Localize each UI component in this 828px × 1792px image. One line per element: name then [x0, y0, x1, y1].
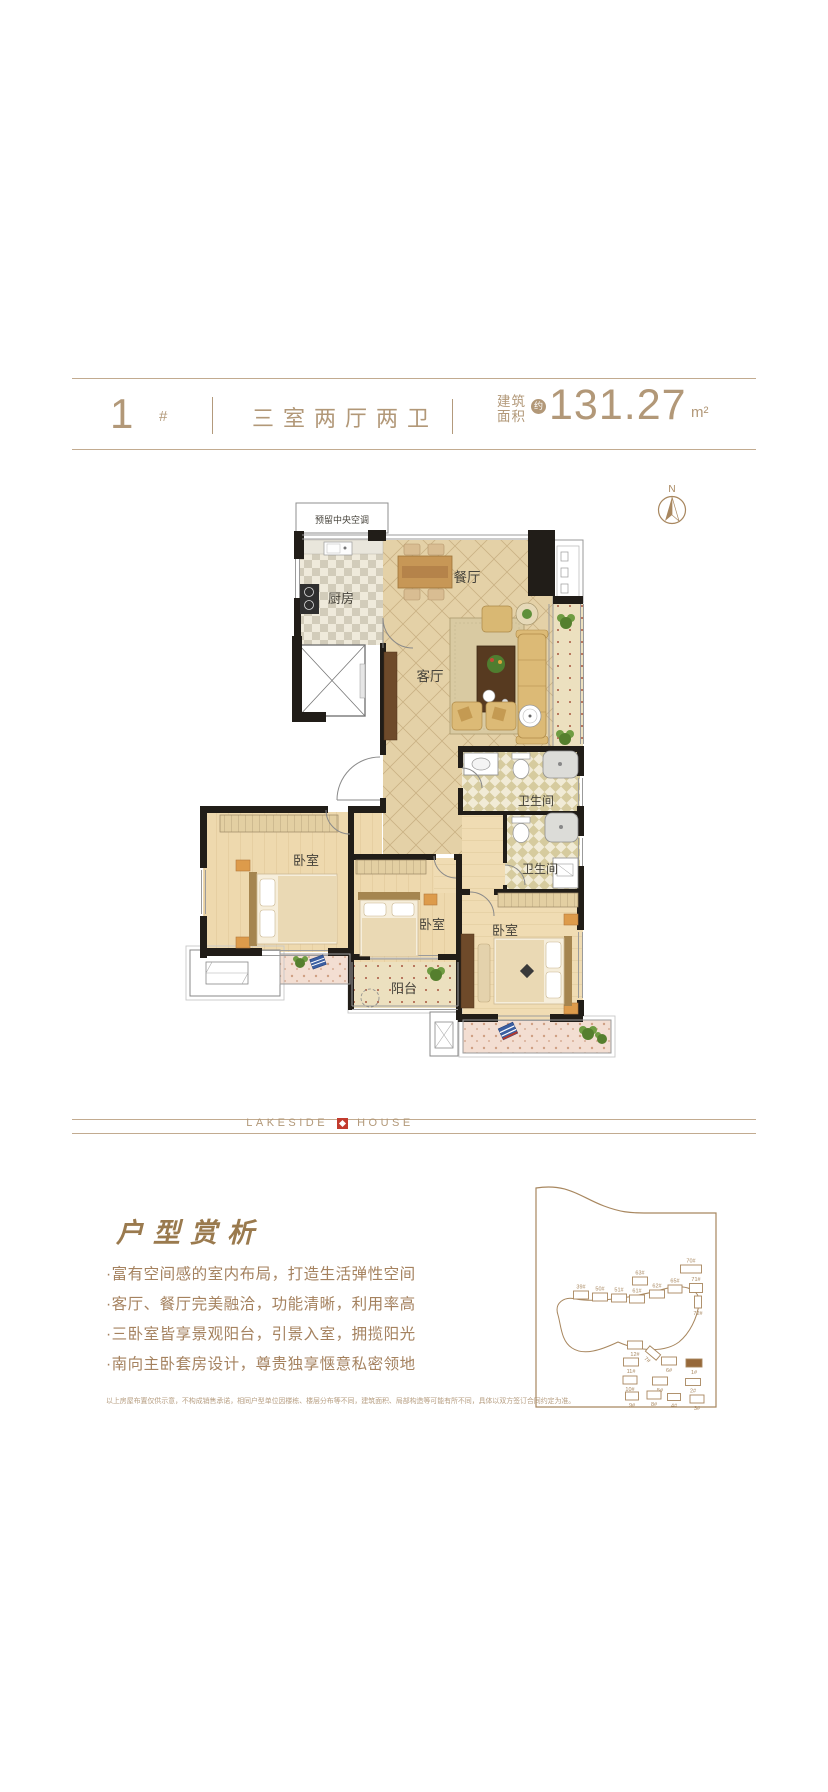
approx-badge: 约: [531, 399, 546, 414]
site-map-building: 2#: [686, 1379, 701, 1395]
site-map-building: 71#: [690, 1277, 703, 1293]
site-map-building: 10#: [623, 1376, 637, 1393]
site-map-building-label: 2#: [690, 1389, 697, 1395]
site-map-building: 62#: [650, 1284, 665, 1299]
site-map-building-label: 72#: [693, 1311, 703, 1317]
site-map-building: 6#: [662, 1357, 677, 1374]
bath1-fixtures: [464, 751, 578, 779]
site-map-svg: 39#50#51#61#62#63#65#70#71#72#12#7#6#1#1…: [528, 1185, 788, 1420]
floor-plan-svg: 预留中央空调 厨房 餐厅 客厅 卫生间 卫生间 卧室 卧室 卧室 阳台 N: [185, 440, 770, 1070]
bay-window: [553, 540, 583, 603]
area-label-top: 建筑: [497, 394, 526, 409]
header-top-rule: [72, 378, 756, 379]
analysis-bullets: ·富有空间感的室内布局，打造生活弹性空间 ·客厅、餐厅完美融洽，功能清晰，利用率…: [106, 1260, 416, 1380]
site-map-building-label: 9#: [629, 1403, 636, 1409]
site-map-building-label: 6#: [666, 1368, 673, 1374]
brand-left: LAKESIDE: [246, 1117, 328, 1129]
brand-strip: LAKESIDE HOUSE: [250, 1117, 410, 1129]
unit-number: 1: [110, 390, 133, 438]
site-map-building-label: 65#: [670, 1279, 680, 1285]
site-map-building-label: 71#: [691, 1277, 701, 1283]
room-label-balcony: 阳台: [391, 981, 417, 996]
site-map-buildings: 39#50#51#61#62#63#65#70#71#72#12#7#6#1#1…: [574, 1259, 705, 1413]
ac-platform-bottom: [430, 1012, 458, 1056]
site-map-building: 72#: [693, 1296, 703, 1317]
site-map-building-label: 70#: [686, 1259, 696, 1265]
site-map-building: 11#: [624, 1358, 639, 1375]
site-map-building-label: 7#: [643, 1356, 652, 1365]
site-map-building-label: 50#: [595, 1287, 605, 1293]
site-map-building-label: 62#: [652, 1284, 662, 1290]
site-map-building: 70#: [681, 1259, 702, 1274]
site-map-building: 39#: [574, 1285, 589, 1300]
brand-bottom-rule: [72, 1133, 756, 1134]
site-map-building-label: 11#: [627, 1369, 637, 1375]
site-map-building-label: 39#: [576, 1285, 586, 1291]
room-label-ac-reserve: 预留中央空调: [315, 514, 369, 525]
header-divider-2: [452, 399, 453, 434]
site-map-building: 63#: [633, 1271, 648, 1286]
site-map-building-label: 1#: [691, 1370, 698, 1376]
analysis-bullet: ·富有空间感的室内布局，打造生活弹性空间: [106, 1260, 416, 1290]
room-label-bedroom-middle: 卧室: [419, 917, 445, 932]
area-label: 建筑 面积: [497, 394, 526, 424]
site-map-building-label: 61#: [632, 1289, 642, 1295]
room-label-bedroom-left: 卧室: [293, 853, 319, 868]
analysis-title: 户型赏析: [116, 1211, 264, 1250]
disclaimer-text: 以上房屋布置仅供示意，不构成销售承诺，相同户型单位因楼栋、楼层分布等不同，建筑面…: [106, 1396, 575, 1406]
room-label-bath1: 卫生间: [518, 794, 554, 808]
area-value: 131.27: [549, 381, 687, 430]
site-map-building: 50#: [593, 1287, 608, 1302]
room-label-living: 客厅: [417, 668, 444, 684]
brand-top-rule: [72, 1119, 756, 1120]
room-label-bedroom-master: 卧室: [492, 923, 518, 938]
site-map-building: 3#: [690, 1395, 704, 1412]
header-divider-1: [212, 397, 213, 434]
site-map-building: 8#: [647, 1391, 661, 1408]
analysis-bullet: ·客厅、餐厅完美融洽，功能清晰，利用率高: [106, 1290, 416, 1320]
site-map-building-label: 4#: [671, 1404, 678, 1410]
page: 1 # 三室两厅两卫 建筑 面积 约 131.27 m²: [0, 0, 828, 1792]
site-map-building-label: 51#: [614, 1288, 624, 1294]
layout-type: 三室两厅两卫: [252, 401, 438, 433]
elevator: [299, 645, 365, 716]
brand-seal-icon: [337, 1118, 348, 1129]
site-map-building: 65#: [668, 1279, 682, 1294]
unit-suffix: #: [159, 408, 167, 425]
compass-needle: [665, 497, 672, 521]
analysis-bullet: ·三卧室皆享景观阳台，引景入室，拥揽阳光: [106, 1320, 416, 1350]
analysis-bullet: ·南向主卧套房设计，尊贵独享惬意私密领地: [106, 1350, 416, 1380]
compass: N: [659, 484, 686, 524]
area-label-bottom: 面积: [497, 409, 526, 424]
room-label-dining: 餐厅: [454, 570, 481, 585]
site-map-building: 1#: [686, 1359, 702, 1376]
area-unit: m²: [691, 404, 709, 421]
site-map-building-label: 63#: [635, 1271, 645, 1277]
room-label-kitchen: 厨房: [328, 591, 354, 606]
site-map-building-label: 8#: [651, 1402, 658, 1408]
site-map-building-label: 3#: [694, 1406, 701, 1412]
site-map-building-label: 12#: [630, 1352, 640, 1358]
brand-right: HOUSE: [357, 1117, 414, 1129]
room-label-bath2: 卫生间: [522, 862, 558, 876]
site-map-building: 61#: [630, 1289, 645, 1304]
site-map-building: 12#: [628, 1341, 643, 1358]
site-map-building: 51#: [612, 1288, 627, 1303]
compass-n-label: N: [668, 484, 675, 495]
